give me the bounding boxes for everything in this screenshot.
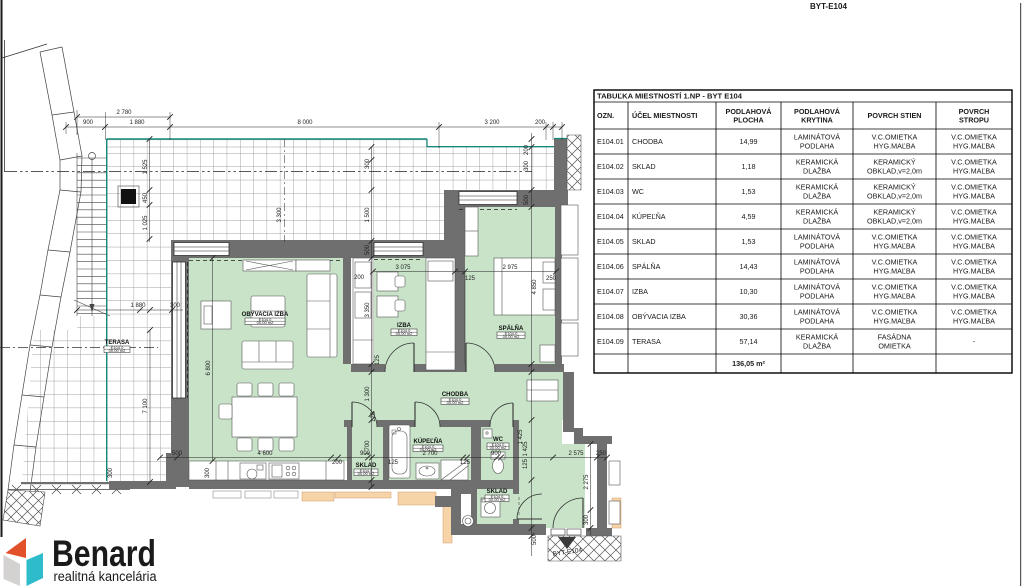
svg-text:2 275: 2 275 (584, 474, 590, 490)
svg-text:STROPU: STROPU (959, 116, 989, 125)
svg-text:ÚČEL MIESTNOSTI: ÚČEL MIESTNOSTI (632, 111, 697, 120)
svg-text:DLAŽBA: DLAŽBA (803, 341, 831, 350)
svg-text:TABUĽKA MIESTNOSTÍ 1.NP - BYT: TABUĽKA MIESTNOSTÍ 1.NP - BYT E104 (597, 92, 743, 101)
svg-text:2 780: 2 780 (116, 110, 132, 116)
svg-text:300: 300 (205, 467, 211, 478)
svg-text:POVRCH STIEN: POVRCH STIEN (868, 111, 922, 120)
svg-text:200: 200 (354, 275, 365, 281)
svg-text:500: 500 (532, 534, 538, 545)
svg-text:250: 250 (546, 276, 557, 282)
svg-text:1,18: 1,18 (742, 162, 756, 171)
svg-text:900: 900 (491, 451, 502, 457)
svg-text:00,00 m2: 00,00 m2 (358, 471, 375, 476)
svg-text:00,00 m2: 00,00 m2 (257, 320, 274, 325)
svg-text:4 850: 4 850 (532, 279, 538, 295)
svg-text:00,00 m2: 00,00 m2 (489, 497, 506, 502)
svg-text:SKLAD: SKLAD (632, 237, 656, 246)
svg-text:2 975: 2 975 (502, 265, 518, 271)
svg-text:E104.06: E104.06 (597, 262, 624, 271)
svg-text:DLAŽBA: DLAŽBA (803, 216, 831, 225)
svg-text:300: 300 (170, 303, 181, 309)
svg-text:CHODBA: CHODBA (632, 137, 663, 146)
svg-text:6 800: 6 800 (206, 360, 212, 376)
svg-text:Benard: Benard (52, 533, 156, 574)
svg-text:125: 125 (388, 460, 399, 466)
svg-text:136,05 m²: 136,05 m² (732, 359, 765, 368)
svg-text:14,43: 14,43 (740, 262, 758, 271)
svg-text:BYT-E104: BYT-E104 (810, 2, 847, 11)
svg-text:HYG.MAĽBA: HYG.MAĽBA (874, 241, 916, 250)
svg-text:10,30: 10,30 (740, 287, 758, 296)
svg-text:2 575: 2 575 (568, 451, 584, 457)
svg-text:450: 450 (143, 192, 149, 203)
svg-text:TERASA: TERASA (632, 337, 661, 346)
svg-text:HYG.MAĽBA: HYG.MAĽBA (953, 291, 995, 300)
svg-text:1 880: 1 880 (130, 303, 146, 309)
svg-text:00,00 m2: 00,00 m2 (109, 348, 126, 353)
svg-text:PODLAHA: PODLAHA (800, 316, 835, 325)
svg-text:3 300: 3 300 (277, 207, 283, 223)
svg-text:PLOCHA: PLOCHA (733, 116, 763, 125)
svg-text:500: 500 (172, 451, 183, 457)
svg-text:300: 300 (584, 514, 590, 525)
svg-text:125: 125 (523, 458, 529, 469)
svg-text:HYG.MAĽBA: HYG.MAĽBA (953, 241, 995, 250)
svg-text:HYG.MAĽBA: HYG.MAĽBA (953, 266, 995, 275)
svg-text:PODLAHA: PODLAHA (800, 266, 835, 275)
svg-text:HYG.MAĽBA: HYG.MAĽBA (874, 291, 916, 300)
svg-text:250: 250 (596, 451, 607, 457)
svg-text:2 700: 2 700 (422, 451, 438, 457)
svg-text:E104.07: E104.07 (597, 287, 624, 296)
svg-text:500: 500 (365, 244, 371, 255)
svg-text:1 300: 1 300 (365, 386, 371, 402)
svg-text:realitná kancelária: realitná kancelária (54, 569, 157, 584)
svg-text:200: 200 (332, 460, 343, 466)
svg-text:00,00 m2: 00,00 m2 (503, 334, 520, 339)
svg-text:00,00 m2: 00,00 m2 (447, 400, 464, 405)
svg-text:125: 125 (465, 276, 476, 282)
svg-text:IZBA: IZBA (632, 287, 648, 296)
svg-text:1 425: 1 425 (518, 429, 524, 445)
svg-text:1 880: 1 880 (129, 120, 145, 126)
svg-text:HYG.MAĽBA: HYG.MAĽBA (953, 216, 995, 225)
svg-text:SPÁLŇA: SPÁLŇA (632, 262, 661, 271)
svg-text:OMIETKA: OMIETKA (878, 341, 911, 350)
svg-text:OBKLAD,v=2,0m: OBKLAD,v=2,0m (867, 191, 922, 200)
svg-text:E104.02: E104.02 (597, 162, 624, 171)
svg-text:3 200: 3 200 (484, 120, 500, 126)
svg-text:HYG.MAĽBA: HYG.MAĽBA (874, 141, 916, 150)
svg-text:KRYTINA: KRYTINA (801, 116, 833, 125)
svg-text:1,53: 1,53 (742, 237, 756, 246)
svg-text:1 025: 1 025 (143, 215, 149, 231)
svg-text:OZN.: OZN. (597, 111, 614, 120)
svg-text:1 525: 1 525 (143, 159, 149, 175)
svg-text:HYG.MAĽBA: HYG.MAĽBA (953, 316, 995, 325)
svg-text:200: 200 (524, 144, 530, 155)
svg-text:4,59: 4,59 (742, 212, 756, 221)
svg-text:DLAŽBA: DLAŽBA (803, 191, 831, 200)
svg-text:PODLAHA: PODLAHA (800, 141, 835, 150)
svg-text:3 075: 3 075 (395, 265, 411, 271)
svg-text:E104.01: E104.01 (597, 137, 624, 146)
svg-text:125: 125 (460, 460, 471, 466)
svg-text:OBÝVACIA IZBA: OBÝVACIA IZBA (632, 312, 686, 321)
svg-text:57,14: 57,14 (740, 337, 758, 346)
svg-text:PODLAHA: PODLAHA (800, 291, 835, 300)
svg-text:HYG.MAĽBA: HYG.MAĽBA (953, 141, 995, 150)
svg-text:14,99: 14,99 (740, 137, 758, 146)
svg-text:8 000: 8 000 (297, 120, 313, 126)
svg-text:200: 200 (535, 120, 546, 126)
svg-text:00,00 m2: 00,00 m2 (396, 331, 413, 336)
svg-text:OBKLAD,v=2,0m: OBKLAD,v=2,0m (867, 166, 922, 175)
svg-text:E104.05: E104.05 (597, 237, 624, 246)
svg-text:900: 900 (83, 120, 94, 126)
svg-text:OBKLAD,v=2,0m: OBKLAD,v=2,0m (867, 216, 922, 225)
svg-text:30,36: 30,36 (740, 312, 758, 321)
svg-text:HYG.MAĽBA: HYG.MAĽBA (953, 166, 995, 175)
svg-text:HYG.MAĽBA: HYG.MAĽBA (874, 316, 916, 325)
svg-text:900: 900 (360, 451, 371, 457)
svg-text:WC: WC (632, 187, 644, 196)
svg-text:PODLAHA: PODLAHA (800, 241, 835, 250)
svg-text:SKLAD: SKLAD (632, 162, 656, 171)
svg-text:125: 125 (375, 354, 381, 365)
svg-text:7 100: 7 100 (143, 398, 149, 414)
svg-text:3 350: 3 350 (365, 302, 371, 318)
svg-text:300: 300 (524, 160, 530, 171)
svg-text:1 500: 1 500 (365, 207, 371, 223)
svg-text:1,53: 1,53 (742, 187, 756, 196)
svg-text:KÚPEĽŇA: KÚPEĽŇA (632, 212, 666, 221)
svg-text:E104.04: E104.04 (597, 212, 624, 221)
svg-text:300: 300 (108, 467, 114, 478)
svg-text:300: 300 (365, 158, 371, 169)
svg-text:125: 125 (371, 411, 377, 422)
svg-text:4 600: 4 600 (257, 451, 273, 457)
svg-text:E104.08: E104.08 (597, 312, 624, 321)
svg-text:HYG.MAĽBA: HYG.MAĽBA (874, 266, 916, 275)
svg-text:E104.09: E104.09 (597, 337, 624, 346)
svg-text:HYG.MAĽBA: HYG.MAĽBA (953, 191, 995, 200)
svg-text:E104.03: E104.03 (597, 187, 624, 196)
svg-text:DLAŽBA: DLAŽBA (803, 166, 831, 175)
svg-text:00,00 m2: 00,00 m2 (490, 445, 507, 450)
svg-text:500: 500 (524, 194, 530, 205)
